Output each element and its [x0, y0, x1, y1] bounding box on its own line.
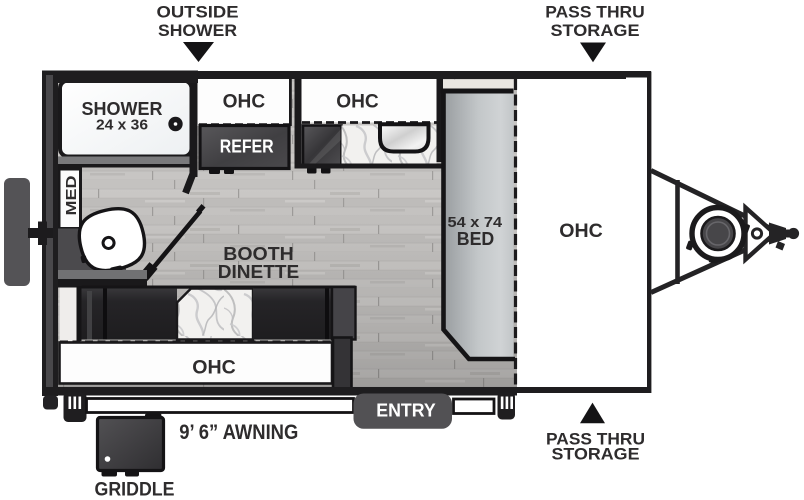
svg-text:OHC: OHC: [336, 91, 379, 112]
svg-text:DINETTE: DINETTE: [218, 262, 300, 282]
svg-text:OUTSIDE: OUTSIDE: [157, 2, 239, 21]
svg-text:9’ 6” AWNING: 9’ 6” AWNING: [179, 420, 298, 444]
svg-text:OHC: OHC: [559, 221, 603, 242]
svg-text:BOOTH: BOOTH: [223, 244, 294, 264]
svg-text:SHOWER: SHOWER: [158, 21, 237, 40]
svg-text:MED: MED: [63, 175, 80, 215]
svg-text:REFER: REFER: [220, 135, 274, 156]
svg-text:24 x 36: 24 x 36: [96, 118, 148, 134]
svg-text:GRIDDLE: GRIDDLE: [95, 480, 175, 500]
svg-text:STORAGE: STORAGE: [551, 21, 640, 40]
svg-text:SHOWER: SHOWER: [82, 98, 163, 119]
svg-text:OHC: OHC: [192, 357, 236, 378]
svg-text:ENTRY: ENTRY: [376, 400, 436, 421]
svg-text:STORAGE: STORAGE: [552, 445, 640, 464]
svg-text:BED: BED: [457, 229, 495, 249]
svg-text:OHC: OHC: [223, 91, 266, 112]
svg-text:PASS THRU: PASS THRU: [545, 2, 645, 21]
